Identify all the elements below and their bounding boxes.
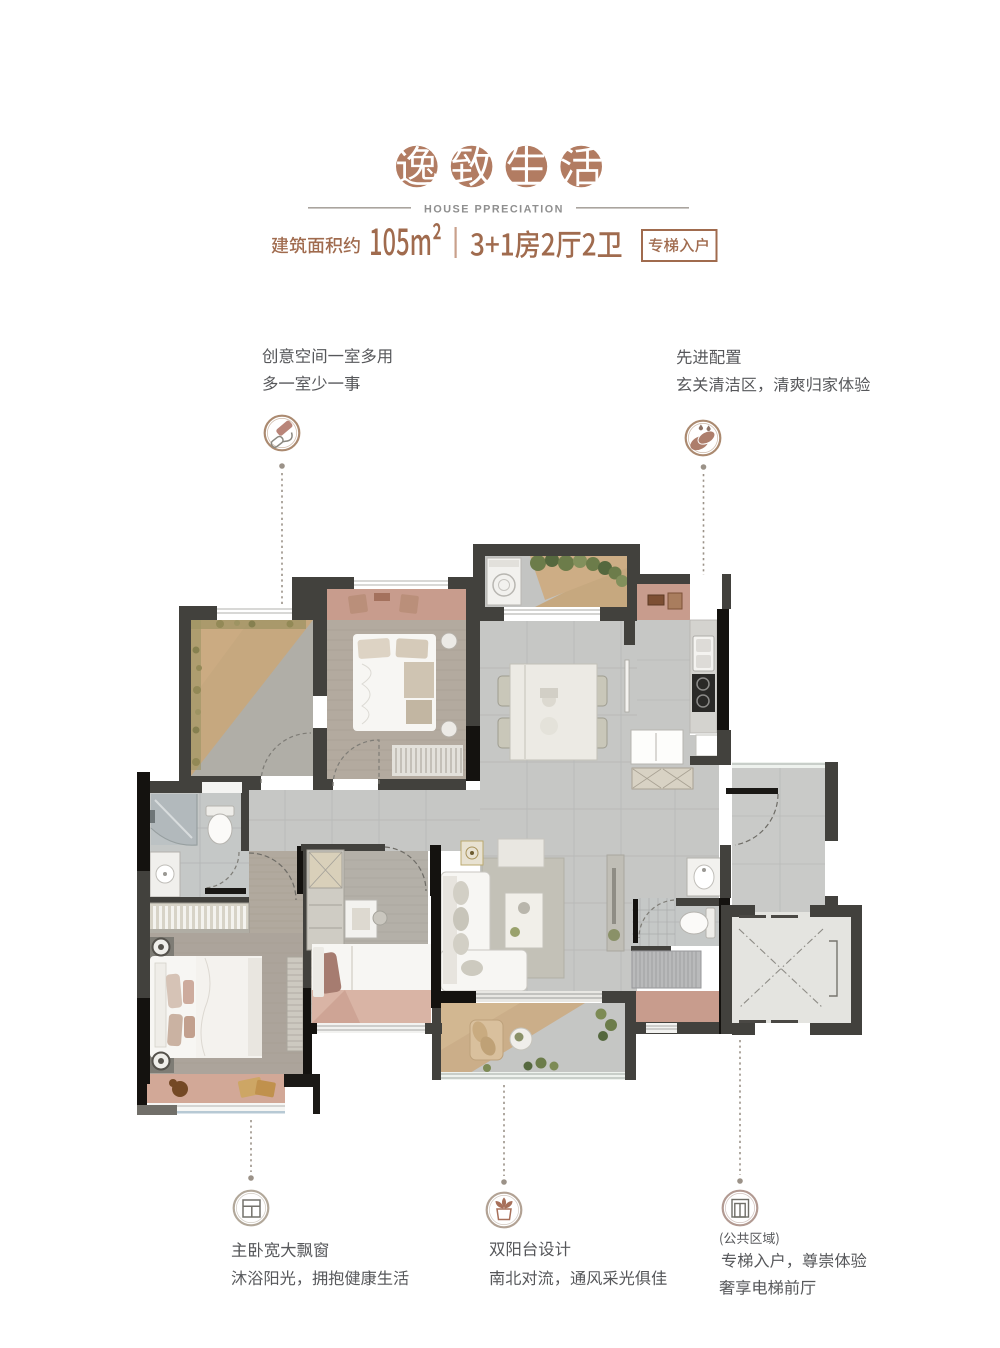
svg-text:HOUSE PPRECIATION: HOUSE PPRECIATION	[424, 204, 564, 216]
